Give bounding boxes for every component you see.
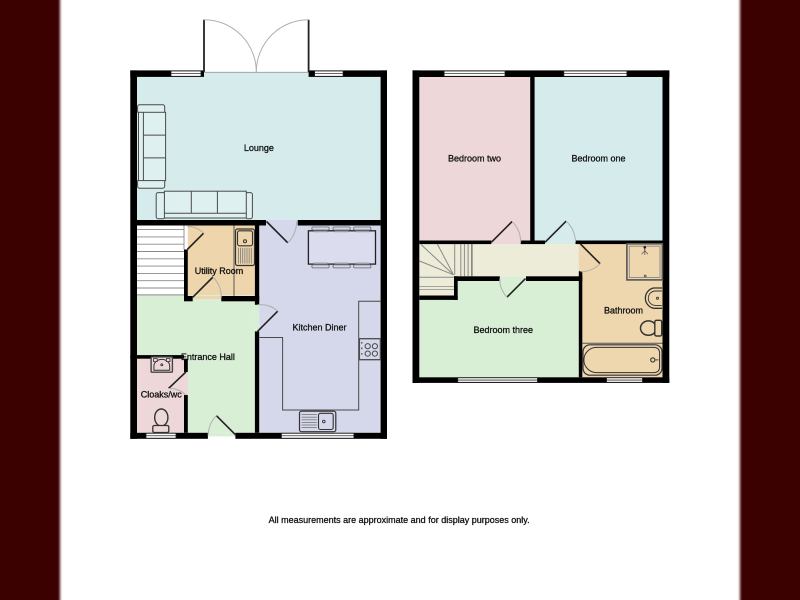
svg-text:Bathroom: Bathroom — [604, 306, 643, 316]
svg-text:Bedroom one: Bedroom one — [571, 154, 625, 164]
svg-text:Kitchen Diner: Kitchen Diner — [292, 323, 346, 333]
svg-text:Lounge: Lounge — [244, 143, 274, 153]
svg-text:Utility Room: Utility Room — [195, 266, 244, 276]
svg-text:Bedroom three: Bedroom three — [474, 325, 534, 335]
svg-text:Bedroom two: Bedroom two — [448, 154, 501, 164]
svg-text:Cloaks/wc: Cloaks/wc — [141, 389, 183, 399]
svg-text:Entrance Hall: Entrance Hall — [181, 352, 235, 362]
svg-text:All measurements are approxima: All measurements are approximate and for… — [269, 515, 530, 525]
